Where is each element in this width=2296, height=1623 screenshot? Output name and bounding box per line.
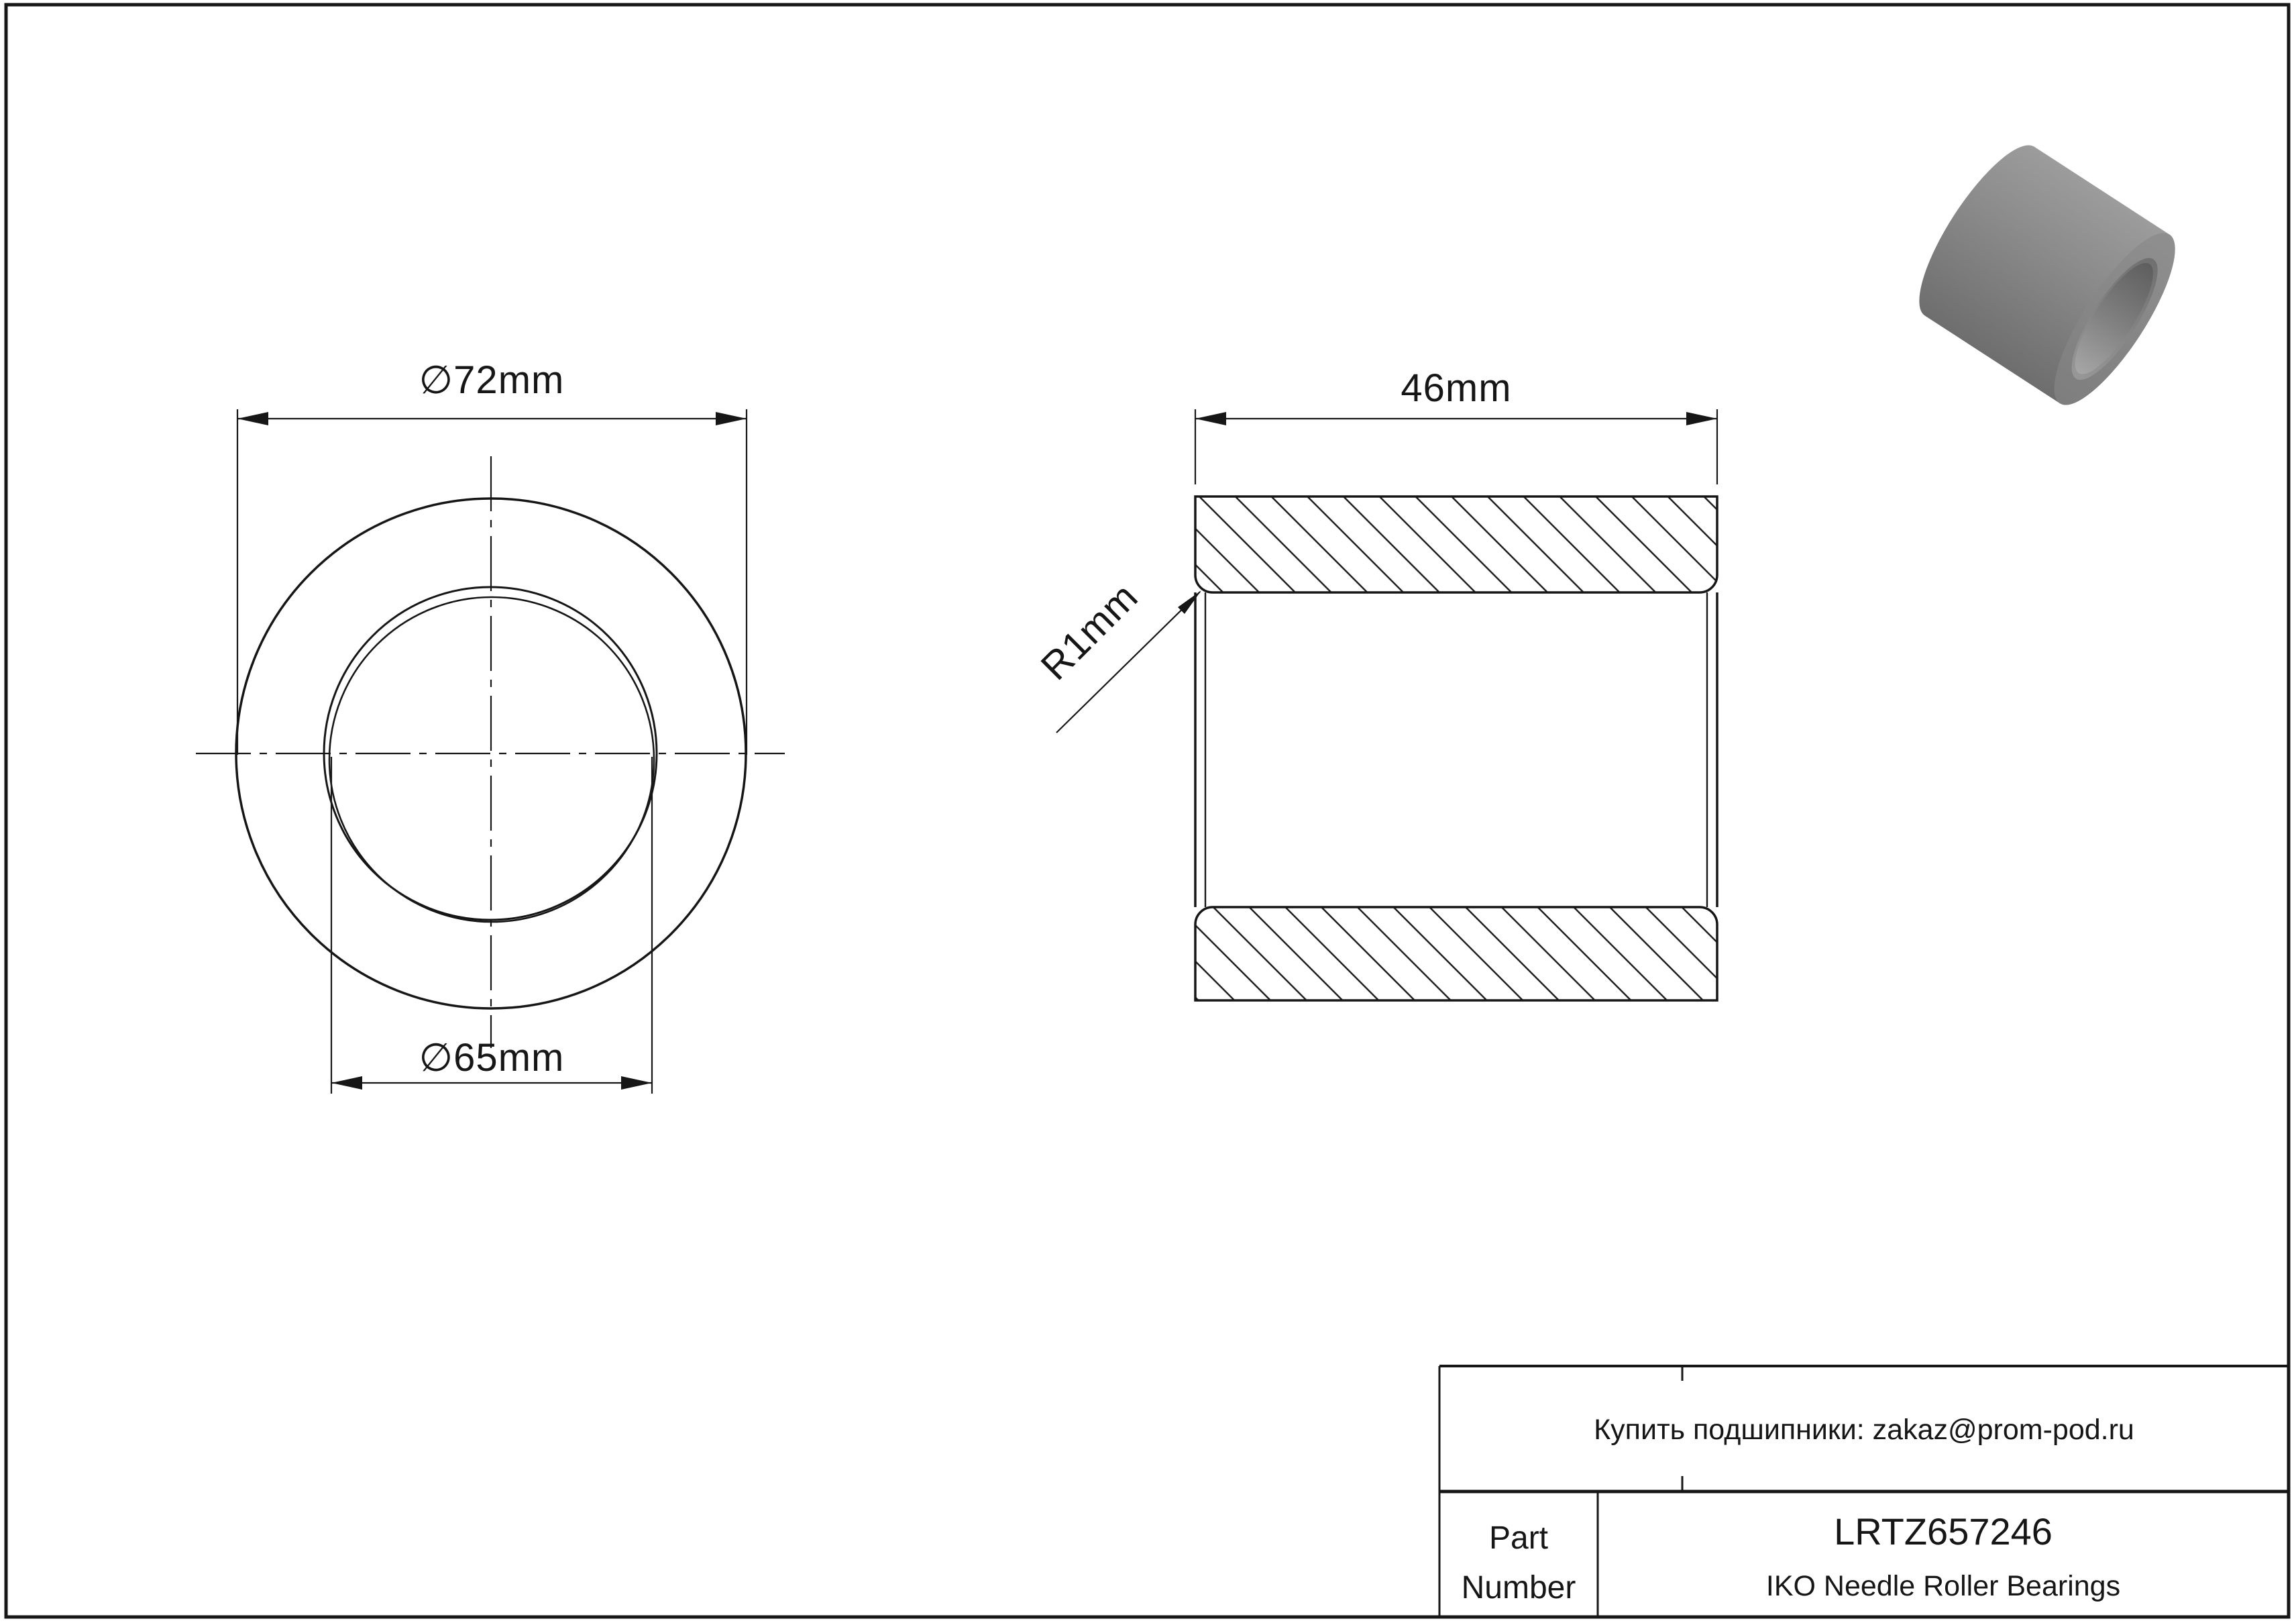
part-number-label-line1: Part — [1489, 1520, 1548, 1556]
part-number-label-line2: Number — [1462, 1570, 1576, 1606]
contact-text: Купить подшипники: zakaz@prom-pod.ru — [1594, 1414, 2134, 1446]
drawing-canvas: ∅72mm ∅65mm 46mm — [0, 0, 2296, 1623]
hatch-band-bottom — [1195, 907, 1717, 1000]
part-number-value: LRTZ657246 — [1834, 1510, 2053, 1553]
dim-label-bore-diameter: ∅65mm — [419, 1036, 565, 1080]
hatch-band-top — [1195, 496, 1717, 592]
dim-label-outer-diameter: ∅72mm — [419, 358, 565, 402]
drawing-sheet: ∅72mm ∅65mm 46mm — [0, 0, 2296, 1623]
dim-label-width: 46mm — [1401, 366, 1511, 410]
brand-text: IKO Needle Roller Bearings — [1766, 1570, 2120, 1602]
